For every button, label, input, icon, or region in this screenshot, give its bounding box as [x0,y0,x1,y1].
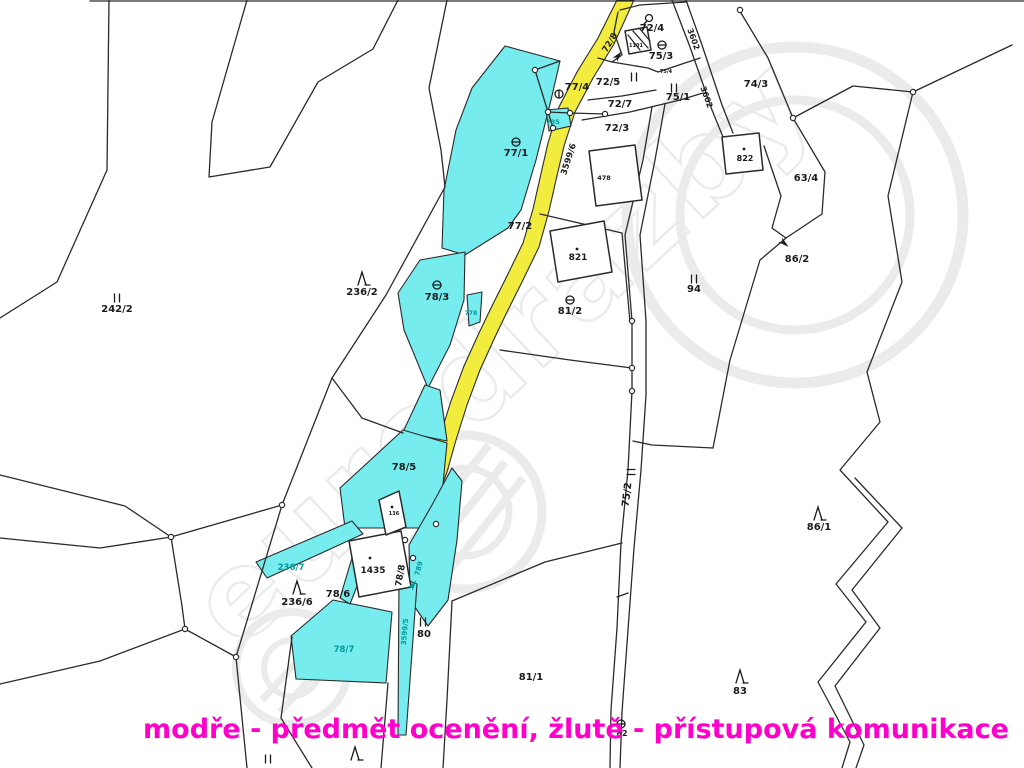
map-canvas: eurodrazby [0,0,1024,768]
boundary-point [910,89,915,94]
parcel-label-94: 94 [687,284,701,295]
parcel-label-1101: 1101 [629,43,643,49]
parcel-label-77-4: 77/4 [565,82,590,93]
parcel-label-236-6: 236/6 [281,597,313,608]
parcel-label-72-3: 72/3 [605,123,630,134]
symbol-dot [369,557,372,560]
symbol-dot [391,506,394,509]
parcel-label-78-7: 78/7 [334,645,355,655]
parcel-label-822: 822 [737,154,754,163]
parcel-label-81-2: 81/2 [558,306,583,317]
boundary-point [182,626,187,631]
parcel-778 [467,292,482,326]
boundary-point [402,537,407,542]
symbol-II [266,755,271,763]
symbol-dot [576,248,579,251]
parcel-label-78-6: 78/6 [326,589,351,600]
cadastral-map-page: eurodrazby [0,0,1024,768]
boundary-point [233,654,238,659]
parcel-label-1435: 1435 [360,566,385,576]
parcel-label-78-3: 78/3 [425,292,450,303]
boundary-point [168,534,173,539]
parcel-label-81-1: 81/1 [519,672,544,683]
parcel-label-236-2: 236/2 [346,287,378,298]
symbol-II [115,294,120,302]
parcel-label-86-2: 86/2 [785,254,810,265]
parcel-3599-5 [398,577,417,735]
parcel-label-75-3: 75/3 [649,51,674,62]
boundary-point [545,109,550,114]
parcel-label-63-4: 63/4 [794,173,819,184]
parcel-label-478: 478 [597,174,611,182]
parcel-label-77-2: 77/2 [508,221,533,232]
boundary-point [629,388,634,393]
parcel-label-821: 821 [569,253,588,263]
boundary-point [790,115,795,120]
boundary-point [737,7,742,12]
symbol-II [632,73,637,81]
boundary-point [602,111,607,116]
symbol-tree [736,670,748,683]
symbol-tree [351,747,363,760]
boundary-point [410,555,415,560]
parcel-label-778: 778 [465,310,478,317]
parcel-label-75-2: 75/2 [621,482,635,508]
parcel-label-77-1: 77/1 [504,148,529,159]
parcel-label-242-2: 242/2 [101,304,133,315]
parcel-label-83: 83 [733,686,747,697]
symbol-tree [358,272,370,285]
parcel-label-3602: 3602 [685,27,701,51]
parcel-label-72-4: 72/4 [640,23,665,34]
boundary-point [629,365,634,370]
parcel-label-80: 80 [417,629,431,640]
boundary-point [532,67,537,72]
parcel-label-72-7: 72/7 [608,99,633,110]
parcel-label-75-4: 75/4 [660,69,673,75]
legend-caption: modře - předmět ocenění, žlutě - přístup… [143,714,1009,745]
symbol-theta [658,41,666,49]
parcel-label-72-5: 72/5 [596,77,621,88]
boundary-point [629,318,634,323]
boundary-point [433,521,438,526]
symbol-phi [555,90,563,98]
parcel-label-74-3: 74/3 [744,79,769,90]
parcel-label-75-1: 75/1 [666,92,691,103]
building-821 [550,221,612,282]
parcel-label-86-1: 86/1 [807,522,832,533]
boundary-point [567,110,572,115]
boundary-point [550,125,555,130]
parcel-label-78-5: 78/5 [392,462,417,473]
parcel-label-236-7: 236/7 [278,563,305,573]
parcel-label-136: 136 [389,511,400,517]
parcel-label-735: 735 [546,118,560,126]
boundary-point [279,502,284,507]
symbol-tree [814,507,826,520]
symbol-dot [743,148,746,151]
